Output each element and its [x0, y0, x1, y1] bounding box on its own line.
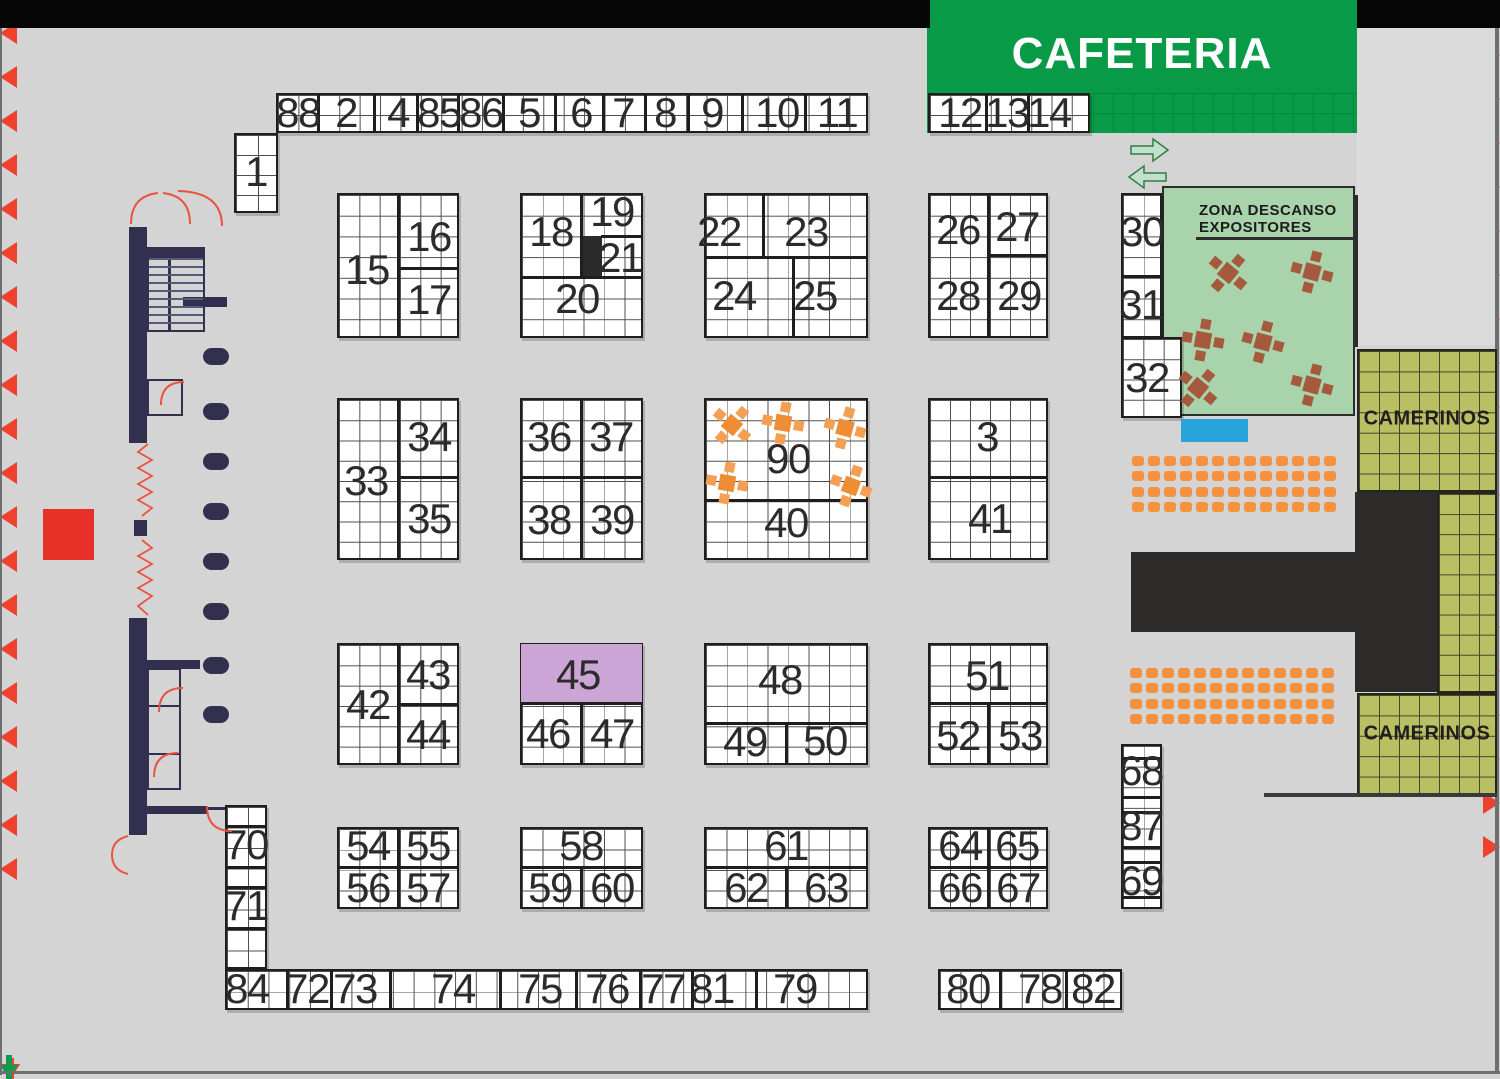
pillar [203, 403, 229, 420]
booth-divider [987, 193, 990, 338]
seat [1324, 502, 1336, 512]
seat [1196, 471, 1208, 481]
seat [1130, 668, 1142, 678]
seat [1196, 456, 1208, 466]
booth-37-label: 37 [589, 416, 633, 458]
seat [1292, 487, 1304, 497]
booth-53-label: 53 [998, 715, 1042, 757]
aisle-arrow-down [0, 916, 20, 952]
seat [1146, 699, 1158, 709]
booth-71-label: 71 [224, 885, 268, 927]
booth-64-label: 64 [938, 825, 982, 867]
booth-33-label: 33 [344, 460, 388, 502]
booth-24-label: 24 [712, 275, 756, 317]
booth-30-label: 30 [1120, 211, 1164, 253]
booth-17-label: 17 [407, 279, 451, 321]
map-border-left [0, 28, 2, 1075]
pillar [203, 553, 229, 570]
aisle-arrow-left [0, 110, 52, 132]
seat [1226, 714, 1238, 724]
seat [1178, 699, 1190, 709]
seat [1212, 502, 1224, 512]
booth-88-label: 88 [276, 92, 320, 134]
booth-divider [373, 93, 376, 133]
booth-divider [397, 398, 400, 560]
booth-15-label: 15 [345, 249, 389, 291]
booth-85-label: 85 [417, 92, 461, 134]
booth-2-label: 2 [335, 92, 357, 134]
seat [1132, 456, 1144, 466]
accordion-block [134, 520, 147, 536]
booth-divider [580, 703, 583, 765]
booth-69-label: 69 [1119, 860, 1163, 902]
seat [1242, 668, 1254, 678]
booth-67-label: 67 [996, 867, 1040, 909]
seat [1322, 714, 1334, 724]
booth-46-label: 46 [526, 713, 570, 755]
booth-48-label: 48 [758, 659, 802, 701]
booth-90-label: 90 [766, 438, 810, 480]
entrance-marker[interactable] [43, 509, 94, 560]
booth-59-label: 59 [528, 867, 572, 909]
seat [1130, 699, 1142, 709]
seat [1292, 502, 1304, 512]
aisle-arrow-left [0, 462, 52, 484]
booth-32-label: 32 [1125, 357, 1169, 399]
seat [1162, 683, 1174, 693]
booth-divider [398, 267, 459, 270]
booth-divider [644, 93, 647, 133]
seat [1322, 683, 1334, 693]
wall-lower-vertical [129, 618, 147, 835]
booth-84-label: 84 [225, 968, 269, 1010]
booth-divider [554, 93, 557, 133]
aisle-arrow-left [0, 814, 52, 836]
seat [1180, 502, 1192, 512]
seat [1260, 502, 1272, 512]
aisle-arrow-right [0, 748, 52, 770]
booth-61-label: 61 [764, 825, 808, 867]
seat [1274, 699, 1286, 709]
seat [1260, 456, 1272, 466]
pillar [203, 706, 229, 723]
seat [1132, 471, 1144, 481]
camerinos-bottom-wall [1264, 793, 1497, 797]
booth-divider [741, 93, 744, 133]
seat [1146, 683, 1158, 693]
aisle-arrow-right [0, 88, 52, 110]
aisle-arrow-right [0, 132, 52, 154]
booth-divider [1065, 969, 1068, 1010]
booth-87-label: 87 [1119, 805, 1163, 847]
seat [1164, 471, 1176, 481]
rest-area-title: ZONA DESCANSO EXPOSITORES [1199, 202, 1337, 236]
aisle-arrow-right [0, 220, 52, 242]
booth-divider [398, 703, 459, 706]
booth-72-label: 72 [285, 968, 329, 1010]
booth-29-label: 29 [997, 275, 1041, 317]
seat [1146, 714, 1158, 724]
accordion-zigzag-1 [138, 444, 152, 516]
aisle-arrow-right [0, 264, 52, 286]
seat [1258, 714, 1270, 724]
seat [1132, 502, 1144, 512]
booth-19-label: 19 [590, 191, 634, 233]
seat [1276, 502, 1288, 512]
booth-divider [520, 476, 643, 479]
booth-10-label: 10 [755, 92, 799, 134]
seat [1242, 699, 1254, 709]
booth-51-label: 51 [965, 655, 1009, 697]
booth-8-label: 8 [654, 92, 676, 134]
seat [1148, 502, 1160, 512]
seat [1162, 699, 1174, 709]
seat [1212, 487, 1224, 497]
top-wall-left [0, 0, 930, 28]
seat [1244, 487, 1256, 497]
booth-63-label: 63 [804, 867, 848, 909]
booth-22-label: 22 [697, 211, 741, 253]
booth-divider [987, 703, 990, 765]
seat [1292, 456, 1304, 466]
booth-81-label: 81 [690, 968, 734, 1010]
booth-18-label: 18 [529, 211, 573, 253]
seat [1226, 683, 1238, 693]
booth-78-label: 78 [1018, 968, 1062, 1010]
seat [1132, 487, 1144, 497]
storage-room-wall [1355, 195, 1358, 347]
cafeteria-grid [1093, 93, 1357, 133]
seat [1258, 683, 1270, 693]
seat [1180, 456, 1192, 466]
seat [1308, 456, 1320, 466]
door-double-2 [112, 855, 128, 874]
booth-42-label: 42 [346, 684, 390, 726]
seat [1226, 668, 1238, 678]
seat [1290, 683, 1302, 693]
aisle-arrow-right [0, 572, 52, 594]
seat [1196, 487, 1208, 497]
aisle-arrow-right [0, 176, 52, 198]
booth-4-label: 4 [387, 92, 409, 134]
aisle-arrow-right [0, 352, 52, 374]
booth-66-label: 66 [938, 867, 982, 909]
seat [1324, 471, 1336, 481]
seat [1258, 668, 1270, 678]
booth-16-label: 16 [407, 216, 451, 258]
seat [1276, 456, 1288, 466]
seat [1258, 699, 1270, 709]
accordion-zigzag-2 [138, 540, 152, 615]
aisle-arrow-right [0, 484, 52, 506]
seat [1194, 714, 1206, 724]
booth-divider [687, 93, 690, 133]
mint-arrow-left [1129, 166, 1166, 188]
booth-57-label: 57 [406, 867, 450, 909]
aisle-arrow-right [0, 792, 52, 814]
aisle-arrow-up [0, 880, 20, 916]
booth-divider [575, 969, 578, 1010]
aisle-arrow-left [0, 594, 52, 616]
wall-bottom-thin [207, 807, 225, 810]
booth-52-label: 52 [936, 715, 980, 757]
stage-wing [1355, 492, 1437, 692]
aisle-arrow-left [0, 858, 52, 880]
booth-86-label: 86 [459, 92, 503, 134]
door-top-2 [163, 193, 190, 224]
booth-60-label: 60 [590, 867, 634, 909]
door-top-1 [131, 193, 158, 224]
booth-9-label: 9 [701, 92, 723, 134]
seat [1164, 502, 1176, 512]
booth-divider [785, 867, 788, 909]
seat [1244, 471, 1256, 481]
seat [1196, 502, 1208, 512]
seat [1130, 714, 1142, 724]
seat [1148, 471, 1160, 481]
seat [1178, 668, 1190, 678]
seat [1162, 668, 1174, 678]
aisle-arrow-left [0, 682, 52, 704]
booth-73-label: 73 [333, 968, 377, 1010]
aisle-arrow-left [0, 198, 52, 220]
booth-31-label: 31 [1119, 284, 1163, 326]
booth-68-label: 68 [1119, 750, 1163, 792]
aisle-arrow-left [0, 286, 52, 308]
seat [1306, 683, 1318, 693]
booth-49-label: 49 [723, 721, 767, 763]
booth-divider [520, 702, 643, 705]
seat [1146, 668, 1158, 678]
map-border-bottom [0, 1071, 1500, 1074]
booth-divider [755, 969, 758, 1010]
seat [1324, 456, 1336, 466]
booth-divider [580, 398, 583, 560]
rest-area-title-line1: ZONA DESCANSO [1199, 202, 1337, 219]
booth-divider [999, 969, 1002, 1010]
booth-44-label: 44 [406, 714, 450, 756]
seat [1274, 683, 1286, 693]
seat [1228, 471, 1240, 481]
pillar [203, 453, 229, 470]
storage-room [1357, 28, 1495, 345]
booth-7-label: 7 [612, 92, 634, 134]
seat [1194, 699, 1206, 709]
aisle-arrow-right [0, 440, 52, 462]
seat [1274, 714, 1286, 724]
booth-82-label: 82 [1071, 968, 1115, 1010]
booth-55-label: 55 [406, 825, 450, 867]
seat [1194, 683, 1206, 693]
booth-13-label: 13 [985, 92, 1029, 134]
seat [1290, 668, 1302, 678]
booth-43-label: 43 [406, 654, 450, 696]
booth-62-label: 62 [724, 867, 768, 909]
booth-14-label: 14 [1027, 92, 1071, 134]
booth-74-label: 74 [431, 968, 475, 1010]
booth-41-label: 41 [968, 498, 1012, 540]
booth-11-label: 11 [817, 92, 858, 134]
booth-divider [397, 193, 400, 338]
seat [1306, 714, 1318, 724]
aisle-arrow-right [0, 704, 52, 726]
seat [1290, 714, 1302, 724]
wall-upper-stub [147, 247, 205, 256]
seat [1226, 699, 1238, 709]
booth-76-label: 76 [585, 968, 629, 1010]
seat [1276, 471, 1288, 481]
camerinos-bottom-label: CAMERINOS [1364, 723, 1491, 746]
seat [1210, 714, 1222, 724]
booth-35-label: 35 [407, 498, 451, 540]
aisle-arrow-left [0, 638, 52, 660]
pillar [203, 603, 229, 620]
booth-47-label: 47 [590, 713, 634, 755]
booth-58-label: 58 [559, 825, 603, 867]
aisle-arrow-down [0, 988, 20, 1024]
seat [1228, 502, 1240, 512]
wall-upper-vertical [129, 227, 147, 443]
seat [1306, 668, 1318, 678]
booth-5-label: 5 [518, 92, 540, 134]
seat [1212, 456, 1224, 466]
booth-divider [389, 969, 392, 1010]
camerinos-grid-right [1437, 492, 1497, 693]
seat [1178, 683, 1190, 693]
pillar [203, 657, 229, 674]
aisle-arrow-left [0, 66, 52, 88]
booth-divider [704, 256, 868, 259]
booth-divider [928, 476, 1048, 479]
aisle-arrow-up [0, 952, 20, 988]
seat [1308, 487, 1320, 497]
booth-20-label: 20 [555, 278, 599, 320]
aisle-arrow-right [0, 44, 52, 66]
booth-39-label: 39 [590, 499, 634, 541]
aisle-arrow-right [0, 396, 52, 418]
booth-21-label: 21 [598, 237, 642, 279]
seat [1212, 471, 1224, 481]
booth-divider [499, 969, 502, 1010]
aisle-arrow-right [0, 660, 52, 682]
small-room-upper [147, 379, 183, 416]
booth-1-label: 1 [245, 151, 267, 193]
aisle-arrow-right [0, 836, 52, 858]
seat [1322, 699, 1334, 709]
booth-38-label: 38 [527, 499, 571, 541]
booth-25-label: 25 [793, 275, 837, 317]
rest-area-title-line2: EXPOSITORES [1199, 219, 1337, 236]
booth-27-label: 27 [995, 206, 1039, 248]
wall-bottom-stub [147, 806, 207, 814]
booth-divider [1121, 796, 1162, 799]
pillar [203, 503, 229, 520]
seat [1228, 456, 1240, 466]
door-top-3 [178, 191, 222, 226]
booth-12-label: 12 [938, 92, 982, 134]
booth-50-label: 50 [803, 720, 847, 762]
booth-90-table [702, 458, 753, 509]
booth-75-label: 75 [518, 968, 562, 1010]
seat [1308, 502, 1320, 512]
pillar [203, 348, 229, 365]
stage [1131, 552, 1355, 632]
seat [1210, 699, 1222, 709]
booth-77-label: 77 [641, 968, 685, 1010]
booth-3-label: 3 [976, 416, 998, 458]
booth-45-label: 45 [556, 654, 600, 696]
top-wall-right [1357, 0, 1500, 28]
aisle-arrow-left [0, 374, 52, 396]
booth-divider [785, 723, 788, 765]
booth-40-label: 40 [764, 502, 808, 544]
seat [1322, 668, 1334, 678]
seat [1210, 683, 1222, 693]
floor-plan: CAFETERIA ZONA DESCANSO EXPOSITORES CAME… [0, 0, 1500, 1079]
booth-80-label: 80 [946, 968, 990, 1010]
seat [1148, 456, 1160, 466]
seat [1194, 668, 1206, 678]
seat [1276, 487, 1288, 497]
seat [1244, 502, 1256, 512]
booth-28-label: 28 [936, 275, 980, 317]
seat [1324, 487, 1336, 497]
seat [1180, 487, 1192, 497]
seat [1290, 699, 1302, 709]
mint-arrow-right [1131, 139, 1168, 161]
booth-divider [398, 476, 459, 479]
booth-34-label: 34 [407, 416, 451, 458]
rest-area-underline [1196, 237, 1355, 240]
seat [1244, 456, 1256, 466]
staircase [147, 256, 205, 332]
booth-23-label: 23 [784, 211, 828, 253]
rest-area-table [1178, 315, 1229, 366]
booth-56-label: 56 [346, 867, 390, 909]
booth-26-label: 26 [936, 209, 980, 251]
aisle-arrow-right [0, 308, 52, 330]
seat [1228, 487, 1240, 497]
seat [1180, 471, 1192, 481]
booth-79-label: 79 [773, 968, 817, 1010]
aisle-arrow-left [0, 770, 52, 792]
seat [1260, 471, 1272, 481]
booth-divider [580, 193, 583, 277]
booth-65-label: 65 [995, 825, 1039, 867]
booth-divider [988, 254, 1048, 257]
seat [1292, 471, 1304, 481]
booth-divider [602, 93, 605, 133]
seat [1242, 683, 1254, 693]
booth-6-label: 6 [570, 92, 592, 134]
seat [1148, 487, 1160, 497]
seat [1164, 487, 1176, 497]
aisle-arrow-left [0, 242, 52, 264]
aisle-arrow-left [0, 418, 52, 440]
booth-divider [804, 93, 807, 133]
seat [1308, 471, 1320, 481]
seat [1242, 714, 1254, 724]
door-double-1 [112, 836, 128, 855]
seat [1164, 456, 1176, 466]
seat [1210, 668, 1222, 678]
booth-36-label: 36 [527, 416, 571, 458]
booth-54-label: 54 [346, 825, 390, 867]
aisle-arrow-left [0, 154, 52, 176]
seat [1130, 683, 1142, 693]
small-rooms-lower [147, 668, 181, 790]
booth-divider [580, 867, 583, 909]
